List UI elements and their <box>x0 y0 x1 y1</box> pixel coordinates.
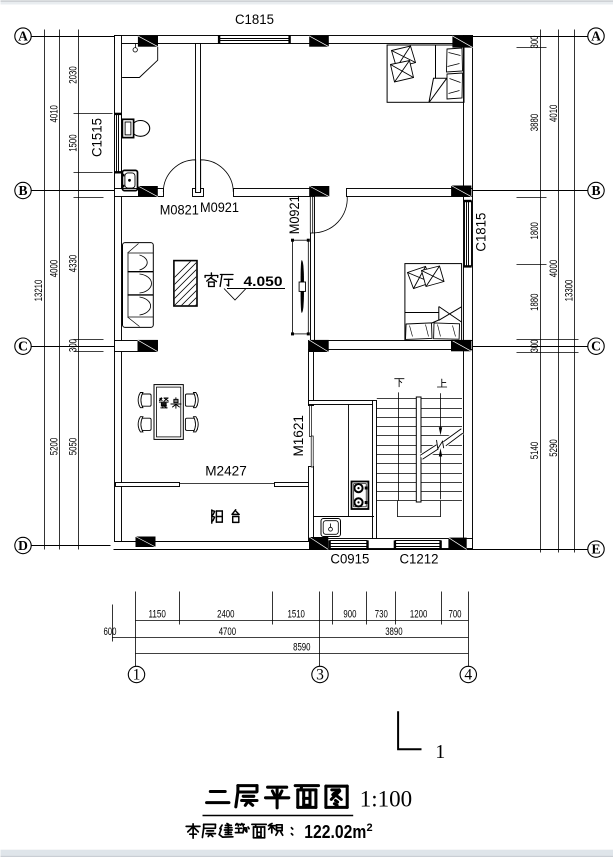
svg-text:8590: 8590 <box>293 642 310 654</box>
svg-text:D: D <box>18 538 28 553</box>
svg-text:13300: 13300 <box>563 280 575 302</box>
svg-text:3890: 3890 <box>385 626 402 638</box>
svg-text:1: 1 <box>133 667 141 684</box>
svg-text:1200: 1200 <box>410 608 427 620</box>
svg-text:C1212: C1212 <box>400 552 439 567</box>
svg-text:300: 300 <box>529 35 541 48</box>
svg-text:C1515: C1515 <box>90 118 105 157</box>
svg-text:300: 300 <box>67 339 79 352</box>
svg-text:M0921: M0921 <box>200 200 239 215</box>
svg-text:4.050: 4.050 <box>244 273 283 289</box>
svg-text:122.02m: 122.02m <box>304 821 366 842</box>
svg-text:C0915: C0915 <box>330 552 369 567</box>
svg-text:5050: 5050 <box>67 438 79 455</box>
svg-text:1800: 1800 <box>529 222 541 239</box>
svg-text:A: A <box>18 29 28 44</box>
svg-text:B: B <box>591 183 600 198</box>
svg-text:2030: 2030 <box>67 66 79 83</box>
svg-text:2400: 2400 <box>217 608 234 620</box>
svg-text:M1621: M1621 <box>291 415 306 457</box>
svg-text:C1815: C1815 <box>473 213 488 252</box>
svg-text:1510: 1510 <box>288 608 305 620</box>
svg-text:A: A <box>591 29 601 44</box>
svg-text:C1815: C1815 <box>235 12 274 27</box>
svg-text:4000: 4000 <box>48 260 60 277</box>
svg-text:1880: 1880 <box>529 294 541 311</box>
svg-text:M2427: M2427 <box>205 464 247 479</box>
svg-text:900: 900 <box>343 608 356 620</box>
svg-text:4330: 4330 <box>67 255 79 272</box>
svg-text:4: 4 <box>464 667 472 684</box>
svg-text:B: B <box>18 183 27 198</box>
svg-text:4010: 4010 <box>548 105 560 122</box>
svg-text:1150: 1150 <box>149 608 166 620</box>
svg-text:4700: 4700 <box>219 626 236 638</box>
svg-text:5140: 5140 <box>529 442 541 459</box>
svg-text:2: 2 <box>367 822 373 834</box>
svg-text:1: 1 <box>435 741 445 763</box>
svg-text:600: 600 <box>103 626 116 638</box>
svg-text:M0821: M0821 <box>160 203 199 218</box>
svg-text:4000: 4000 <box>548 260 560 277</box>
svg-text:3: 3 <box>316 667 324 684</box>
svg-text:M0921: M0921 <box>287 195 302 234</box>
svg-text:C: C <box>18 339 28 354</box>
svg-text:300: 300 <box>529 339 541 352</box>
svg-text:700: 700 <box>448 608 461 620</box>
svg-text:13210: 13210 <box>33 280 45 302</box>
svg-text:5290: 5290 <box>548 439 560 456</box>
svg-text:3880: 3880 <box>529 114 541 131</box>
svg-text:1:100: 1:100 <box>360 787 412 812</box>
svg-text:1500: 1500 <box>67 134 79 151</box>
svg-text:730: 730 <box>375 608 388 620</box>
svg-text:4010: 4010 <box>48 105 60 122</box>
svg-text:C: C <box>591 339 601 354</box>
svg-text:E: E <box>591 542 600 557</box>
svg-text:5200: 5200 <box>48 438 60 455</box>
